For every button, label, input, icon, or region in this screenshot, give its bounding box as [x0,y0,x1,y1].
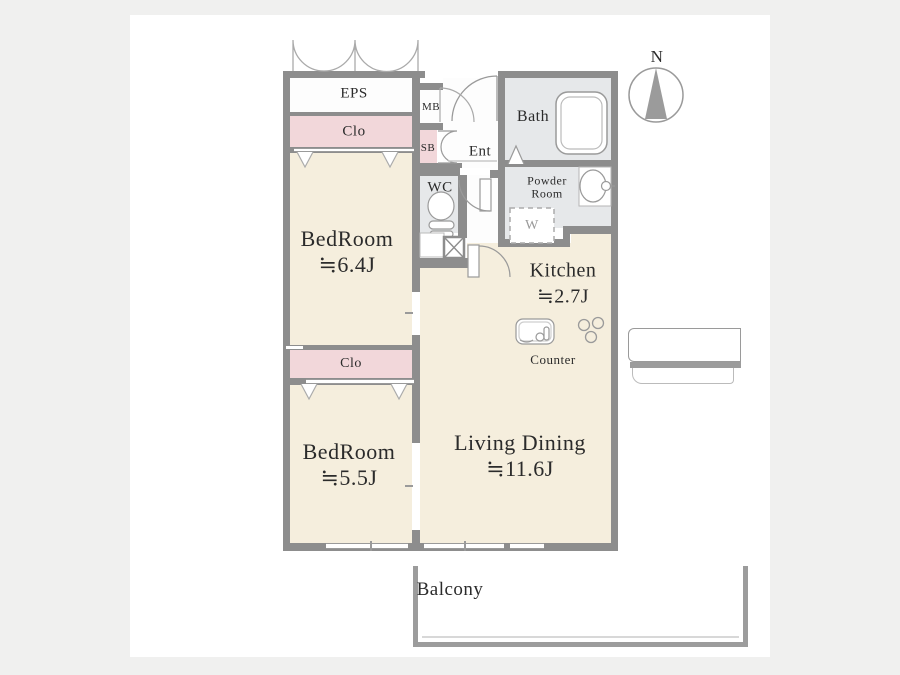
closet-lower-opening [306,379,414,384]
wall-mb-top [412,83,443,90]
wall-below-wc [412,258,470,268]
kitchen-size: ≒2.7J [537,284,589,309]
corridor-door-opening [460,168,490,175]
bedroom-lower-size: ≒5.5J [321,465,378,491]
living-dining-name: Living Dining [454,430,586,456]
wc-label: WC [427,180,452,197]
closet-upper-label: Clo [342,124,365,141]
wall-powder-bottom [563,226,611,234]
floor-plan-page: EPS Clo BedRoom ≒6.4J Clo BedRoom ≒5.5J … [0,0,900,675]
plan-canvas [130,15,770,657]
sliding-door-tick-upper [405,312,413,314]
wall-ent-bottom [412,163,462,176]
powder-room-label-2: Room [531,187,562,202]
sliding-door-tick-lower [405,485,413,487]
bedroom-upper-size: ≒6.4J [319,252,376,278]
compass-north-label: N [651,47,664,67]
entrance-label: Ent [469,144,491,161]
counter-label: Counter [530,352,575,368]
wall-left [283,71,290,551]
wall-wc-right [458,175,467,238]
wall-niche-bottom [498,239,570,247]
wall-corridor-top-right [490,170,498,178]
wall-top-bath-block [498,71,618,78]
balcony-rail [422,636,739,638]
kitchen-counter-label-band [632,368,734,384]
bedroom-upper-name: BedRoom [301,226,394,252]
closet-lower-notch [286,346,303,349]
kitchen-name: Kitchen [530,260,597,283]
window-tick-2 [464,541,466,551]
washer-label: W [525,218,539,234]
closet-lower-label: Clo [340,356,362,372]
bath-label: Bath [517,108,549,126]
living-dining-size: ≒11.6J [486,456,554,482]
corridor [467,175,498,243]
wall-eps-clo-divider [290,112,418,116]
wall-bath-left [498,78,505,167]
kitchen-counter [628,328,741,362]
wall-mb-bottom [412,123,443,130]
sliding-door-bedroom-lower [412,443,420,530]
wall-corridor-right [498,167,505,247]
sliding-door-bedroom-upper [412,292,420,335]
kitchen-floor-corner [571,234,611,245]
bedroom-lower-name: BedRoom [303,439,396,465]
window-living-2 [510,543,544,549]
meter-box-label: MB [422,101,440,113]
shoe-box-label: SB [421,142,435,154]
window-bedroom-lower [326,543,408,549]
living-dining-room [420,268,611,543]
balcony-label: Balcony [417,579,484,601]
window-tick-1 [370,541,372,551]
wall-top-left-block [283,71,425,78]
closet-upper-opening [294,148,414,152]
eps-label: EPS [340,86,367,103]
wall-clo-lower-top [283,345,420,350]
wall-right [611,71,618,551]
wall-bath-bottom [498,160,611,167]
